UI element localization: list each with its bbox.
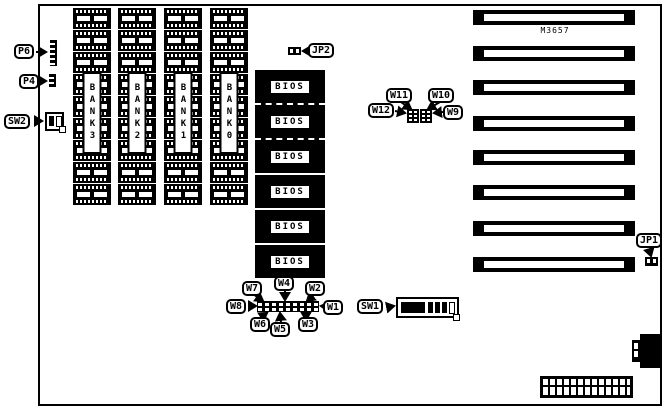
- memory-chip: [73, 162, 111, 183]
- bios-chip-label: BIOS: [271, 116, 309, 128]
- jumper-label-w3: W3: [298, 317, 318, 332]
- memory-bank-column-1: BANK1: [164, 8, 202, 206]
- jumper-label-w7: W7: [242, 281, 262, 296]
- jp2-jumper-block: [288, 47, 301, 55]
- keyboard-connector-notch: [634, 343, 638, 349]
- memory-chip: [118, 184, 156, 205]
- expansion-slot: [473, 185, 635, 200]
- jumper-label-w9: W9: [443, 105, 463, 120]
- memory-chip: [118, 30, 156, 51]
- sw1-switch-pos: [442, 302, 447, 313]
- switch-label-sw1: SW1: [357, 299, 383, 314]
- bios-chip: BIOS: [255, 140, 325, 173]
- jumper-label-w2: W2: [305, 281, 325, 296]
- bios-chip-stack: BIOS BIOS BIOS BIOS BIOS BIOS: [255, 70, 325, 280]
- bios-chip-label: BIOS: [271, 186, 309, 198]
- p6-pin-header: [50, 40, 57, 66]
- memory-chip: [164, 30, 202, 51]
- expansion-slot: [473, 221, 635, 236]
- memory-chip: [118, 162, 156, 183]
- bios-chip-label: BIOS: [271, 81, 309, 93]
- memory-chip: [164, 184, 202, 205]
- p4-pin-header: [49, 74, 56, 87]
- keyboard-connector-body: [640, 334, 660, 368]
- connector-label-p4: P4: [19, 74, 39, 89]
- power-connector: [540, 376, 633, 398]
- bios-chip: BIOS: [255, 210, 325, 243]
- jumper-label-w8: W8: [226, 299, 246, 314]
- memory-bank-column-0: BANK0: [210, 8, 248, 206]
- bios-chip-label: BIOS: [271, 151, 309, 163]
- sw1-switch-bar: [401, 302, 425, 313]
- jumper-label-w12: W12: [368, 103, 394, 118]
- sw2-switch-on: [49, 116, 54, 126]
- jumper-label-w1: W1: [323, 300, 343, 315]
- memory-chip: [118, 52, 156, 73]
- w11-w12-jumper-block: [407, 109, 419, 123]
- memory-chip: [164, 162, 202, 183]
- keyboard-connector: [632, 334, 660, 369]
- expansion-slot: [473, 80, 635, 95]
- jumper-label-w6: W6: [250, 317, 270, 332]
- w1-w8-jumper-row: [257, 301, 319, 312]
- memory-bank-column-2: BANK2: [118, 8, 156, 206]
- memory-chip: [73, 184, 111, 205]
- memory-chip: [210, 184, 248, 205]
- expansion-slot: [473, 257, 635, 272]
- memory-chip: [164, 52, 202, 73]
- bank-label: BANK3: [83, 72, 102, 154]
- memory-chip: [210, 8, 248, 29]
- expansion-slot-group: [473, 0, 635, 290]
- expansion-slot: [473, 10, 635, 25]
- expansion-slot: [473, 46, 635, 61]
- jumper-label-w5: W5: [270, 322, 290, 337]
- bios-chip-label: BIOS: [271, 256, 309, 268]
- memory-chip: [118, 8, 156, 29]
- sw1-dip-switch: [396, 297, 459, 318]
- sw1-switch-pos: [435, 302, 440, 313]
- bank-label: BANK0: [220, 72, 239, 154]
- bios-chip: BIOS: [255, 70, 325, 105]
- bios-chip-label: BIOS: [271, 221, 309, 233]
- w9-w10-jumper-block: [420, 109, 432, 123]
- jumper-label-w11: W11: [386, 88, 412, 103]
- sw2-switch-off: [56, 116, 62, 127]
- keyboard-connector-notch: [634, 351, 638, 357]
- jumper-label-jp2: JP2: [308, 43, 334, 58]
- bios-chip: BIOS: [255, 105, 325, 140]
- power-connector-pins-bottom: [543, 387, 630, 395]
- sw1-switch-pos: [428, 302, 433, 313]
- sw2-switch-block: [45, 112, 64, 131]
- sw1-switch-pos-off: [449, 302, 455, 314]
- memory-chip: [164, 8, 202, 29]
- memory-chip: [73, 52, 111, 73]
- expansion-slot: [473, 116, 635, 131]
- bank-label: BANK2: [128, 72, 147, 154]
- memory-chip: [210, 162, 248, 183]
- bios-chip: BIOS: [255, 245, 325, 278]
- connector-label-p6: P6: [14, 44, 34, 59]
- motherboard-diagram: BANK3 BANK2 BANK1 BANK0 BIOS BIOS BIOS B…: [0, 0, 667, 415]
- bios-chip: BIOS: [255, 175, 325, 208]
- bank-label: BANK1: [174, 72, 193, 154]
- jumper-label-w10: W10: [428, 88, 454, 103]
- memory-chip: [73, 30, 111, 51]
- power-connector-pins-top: [543, 379, 630, 385]
- memory-bank-column-3: BANK3: [73, 8, 111, 206]
- jumper-label-jp1: JP1: [636, 233, 662, 248]
- board-model-label: M3657: [515, 26, 595, 35]
- switch-label-sw2: SW2: [4, 114, 30, 129]
- memory-chip: [210, 52, 248, 73]
- jumper-label-w4: W4: [274, 276, 294, 291]
- memory-chip: [73, 8, 111, 29]
- expansion-slot: [473, 150, 635, 165]
- memory-chip: [210, 30, 248, 51]
- jp1-jumper-block: [645, 257, 658, 266]
